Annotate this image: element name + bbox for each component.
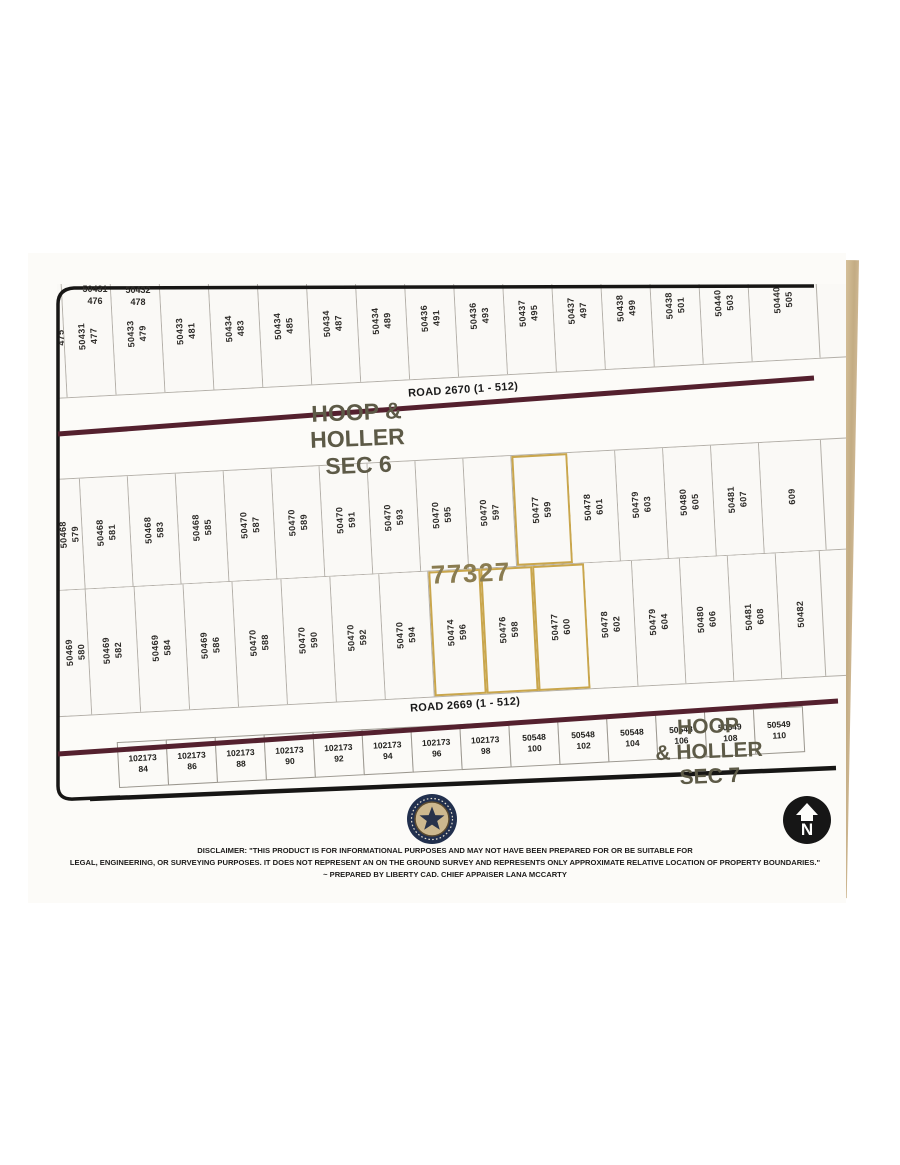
parcel-481: 50433 481 [159, 284, 214, 392]
parcel-497: 50437 497 [551, 284, 606, 372]
parcel-606: 50480 606 [680, 556, 734, 683]
parcel-593: 50470 593 [368, 461, 422, 573]
parcel-493: 50436 493 [453, 284, 508, 377]
parcel-600: 50477 600 [532, 563, 590, 691]
section-7-line2: & HOLLER [650, 737, 769, 767]
parcel-589: 50470 589 [272, 466, 326, 578]
parcel-label: 50481 607 [725, 485, 751, 513]
parcel-label: 609 [786, 488, 799, 505]
parcel-590: 50470 590 [281, 577, 336, 704]
parcel-label: 50433 479 [125, 320, 151, 348]
parcel-label: 50479 604 [646, 608, 672, 636]
parcel-label: 50480 605 [677, 488, 703, 516]
disclaimer-text: DISCLAIMER: "THIS PRODUCT IS FOR INFORMA… [60, 845, 830, 880]
parcel-86: 10217386 [166, 737, 218, 786]
parcel-92: 10217392 [312, 729, 364, 778]
parcel-label: 50474 596 [445, 618, 471, 646]
parcel-495: 50437 495 [502, 284, 557, 374]
parcel-label: 50548102 [571, 729, 596, 751]
north-arrow-icon: N [783, 796, 831, 844]
parcel-503: 50440 503 [698, 284, 753, 364]
parcel-label: 50549110 [767, 719, 792, 741]
parcel-585: 50468 585 [176, 471, 230, 583]
parcel-label-478: 50432 478 [118, 285, 158, 308]
parcel-603: 50479 603 [615, 448, 669, 560]
disclaimer-line2: LEGAL, ENGINEERING, OR SURVEYING PURPOSE… [60, 857, 830, 869]
parcel-591: 50470 591 [320, 464, 374, 576]
parcel-582: 50469 582 [86, 587, 141, 714]
disclaimer-line1: DISCLAIMER: "THIS PRODUCT IS FOR INFORMA… [60, 845, 830, 857]
parcel-label: 50470 597 [477, 498, 503, 526]
parcel-label: 50470 594 [394, 621, 420, 649]
section-6-line3: SEC 6 [296, 449, 422, 480]
parcel-label: 50481 608 [742, 603, 768, 631]
parcel-483: 50434 483 [208, 284, 263, 390]
parcel-594: 50470 594 [379, 572, 434, 699]
parcel-label: 50437 495 [516, 299, 542, 327]
parcel-label: 50469 582 [100, 637, 126, 665]
parcel-label: 50477 599 [529, 495, 555, 523]
parcel-609: 609 [759, 440, 827, 553]
parcel-label: 50434 485 [271, 312, 297, 340]
parcel-label: 50440 505 [770, 286, 796, 314]
section-6-title: HOOP & HOLLER SEC 6 [293, 397, 421, 481]
parcel-label: 10217384 [128, 752, 157, 775]
parcel-601: 50478 601 [567, 451, 621, 563]
parcel-84: 10217384 [117, 739, 169, 788]
parcel-label: 50469 584 [149, 634, 175, 662]
parcel-586: 50469 586 [184, 582, 239, 709]
parcel-label: 50468 579 [57, 520, 82, 548]
parcel-100: 50548100 [508, 719, 560, 768]
parcel-label: 10217386 [177, 750, 206, 773]
parcel-90: 10217390 [264, 732, 316, 781]
parcel-label: 50440 503 [712, 289, 738, 317]
parcel-label: 50470 589 [285, 508, 311, 536]
section-7-line3: SEC 7 [651, 762, 770, 792]
parcel-label: 50548100 [522, 732, 547, 754]
parcel-499: 50438 499 [600, 284, 655, 369]
parcel-label: 50468 581 [93, 518, 119, 546]
parcel-50482: 50482 [776, 551, 826, 678]
parcel-label: 50470 591 [333, 506, 359, 534]
parcel-595: 50470 595 [415, 459, 469, 571]
parcel-485: 50434 485 [257, 284, 312, 387]
section-7-title: HOOP & HOLLER SEC 7 [649, 712, 770, 792]
parcel-604: 50479 604 [632, 558, 686, 685]
parcel-587: 50470 587 [224, 469, 278, 581]
parcel-label: 50470 592 [345, 624, 371, 652]
parcel-505: 50440 505 [746, 284, 820, 361]
parcel-label: 10217392 [324, 742, 353, 765]
parcel-88: 10217388 [215, 734, 267, 783]
parcel-label: 50436 493 [467, 302, 493, 330]
parcel-592: 50470 592 [330, 574, 385, 701]
parcel-597: 50470 597 [463, 456, 517, 568]
parcel-label: 50434 489 [369, 307, 395, 335]
parcel-label: 50433 481 [174, 317, 200, 345]
appraisal-district-seal-icon [405, 792, 459, 846]
parcel-102: 50548102 [557, 716, 609, 765]
parcel-label: 50434 487 [320, 310, 346, 338]
parcel-599: 50477 599 [511, 453, 573, 566]
parcel-96: 10217396 [410, 724, 462, 773]
parcel-label: 50468 585 [189, 513, 215, 541]
parcel-label: 50470 588 [247, 629, 273, 657]
parcel-501: 50438 501 [649, 284, 704, 366]
parcel-label: 50479 603 [629, 490, 655, 518]
parcel-label: 10217388 [226, 747, 255, 770]
parcel-label: 50482 [794, 601, 808, 629]
parcel-label: 50548104 [620, 727, 645, 749]
parcel-label: 50437 497 [565, 297, 591, 325]
parcel-label: 50431 477 [76, 322, 102, 350]
parcel-583: 50468 583 [128, 474, 182, 586]
parcel-label: 10217396 [422, 737, 451, 760]
parcel-label: 50434 483 [222, 315, 248, 343]
parcel-label: 50438 499 [614, 294, 640, 322]
parcel-label: 50469 580 [63, 639, 89, 667]
parcel-label: 50478 601 [581, 493, 607, 521]
parcel-605: 50480 605 [663, 446, 717, 558]
disclaimer-line3: ~ PREPARED BY LIBERTY CAD. CHIEF APPAISE… [60, 869, 830, 881]
parcel-label: 50480 606 [694, 605, 720, 633]
parcel-94: 10217394 [361, 727, 413, 776]
parcel-489: 50434 489 [355, 284, 410, 382]
parcel-491: 50436 491 [404, 284, 459, 379]
parcel-label: 50470 593 [381, 503, 407, 531]
parcel-98: 10217398 [459, 722, 511, 771]
parcel-label: 50477 600 [549, 613, 575, 641]
scanned-plat-page: 50431 47550431 47750433 47950433 4815043… [0, 0, 900, 1165]
parcel-label: 50436 491 [418, 304, 444, 332]
parcel-label: 50438 501 [663, 292, 689, 320]
highlight-tract-number: 77327 [430, 556, 511, 590]
parcel-label: 50470 590 [296, 626, 322, 654]
parcel-581: 50468 581 [80, 476, 134, 588]
parcel-label: 50468 583 [141, 516, 167, 544]
parcel-label: 10217390 [275, 745, 304, 768]
parcel-label-476: 50431 476 [75, 284, 115, 307]
parcel-label: 10217398 [471, 734, 500, 757]
parcel-label: 50470 587 [237, 511, 263, 539]
parcel-607: 50481 607 [711, 443, 765, 555]
parcel-608: 50481 608 [728, 553, 782, 680]
parcel-588: 50470 588 [233, 579, 288, 706]
parcel-584: 50469 584 [135, 584, 190, 711]
parcel-label: 50478 602 [598, 610, 624, 638]
parcel-label: 50469 586 [198, 631, 224, 659]
parcel-label: 50476 598 [497, 616, 523, 644]
section-6-line2: HOLLER [295, 423, 421, 454]
parcel-label: 50470 595 [429, 501, 455, 529]
parcel-487: 50434 487 [306, 284, 361, 384]
parcel-602: 50478 602 [584, 561, 638, 688]
parcel-label: 10217394 [373, 740, 402, 763]
